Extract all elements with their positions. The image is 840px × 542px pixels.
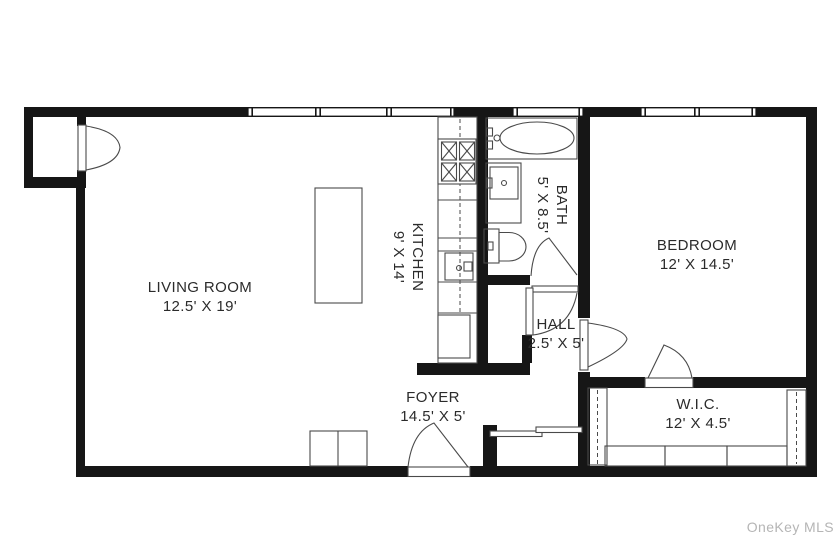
entry-closet-bottom-wall xyxy=(24,177,78,188)
room-name: BATH xyxy=(552,150,571,260)
entry-closet-jamb-bottom xyxy=(77,170,86,188)
room-name: BEDROOM xyxy=(607,236,787,255)
room-label-hall: HALL 2.5' X 5' xyxy=(486,315,626,353)
room-label-bedroom: BEDROOM 12' X 14.5' xyxy=(607,236,787,274)
bottom-wall-right xyxy=(470,466,817,477)
room-dims: 12' X 4.5' xyxy=(608,414,788,433)
top-wall-left xyxy=(24,107,247,117)
toilet xyxy=(484,229,526,263)
foyer-cabinet xyxy=(310,431,367,466)
room-dims: 2.5' X 5' xyxy=(486,334,626,353)
entry-closet-door xyxy=(78,125,120,171)
floor-plan: LIVING ROOM 12.5' X 19' KITCHEN 9' X 14'… xyxy=(0,0,840,542)
wic-shelf-2 xyxy=(665,446,727,466)
wic-top-wall-right xyxy=(693,377,806,388)
entry-door xyxy=(408,423,470,477)
bedroom-west-wall-upper xyxy=(578,107,590,318)
wic-shelf-3 xyxy=(727,446,787,466)
bottom-wall-left xyxy=(76,466,408,477)
room-label-kitchen: KITCHEN 9' X 14' xyxy=(389,197,427,317)
room-name: FOYER xyxy=(353,388,513,407)
room-name: LIVING ROOM xyxy=(110,278,290,297)
refrigerator xyxy=(438,315,470,358)
room-dims: 5' X 8.5' xyxy=(533,150,552,260)
bath-window xyxy=(512,107,584,117)
room-label-wic: W.I.C. 12' X 4.5' xyxy=(608,395,788,433)
living-room-window xyxy=(247,107,455,117)
top-wall-mid-2 xyxy=(584,107,640,117)
wic-top-wall-left xyxy=(588,377,645,388)
kitchen-island xyxy=(315,188,362,303)
foyer-top-wall xyxy=(417,363,530,375)
watermark: OneKey MLS xyxy=(747,519,834,535)
foyer-closet-sliding-doors xyxy=(490,427,582,437)
room-dims: 9' X 14' xyxy=(389,197,408,317)
bath-bottom-wall xyxy=(477,275,530,285)
room-dims: 12.5' X 19' xyxy=(110,297,290,316)
room-label-living-room: LIVING ROOM 12.5' X 19' xyxy=(110,278,290,316)
bedroom-window xyxy=(640,107,757,117)
room-name: KITCHEN xyxy=(408,197,427,317)
left-wall-upper xyxy=(24,107,33,188)
wic-shelf-1 xyxy=(605,446,665,466)
right-wall xyxy=(806,107,817,477)
bath-vanity-sink xyxy=(486,163,521,223)
wic-door xyxy=(645,345,693,388)
room-name: HALL xyxy=(486,315,626,334)
room-dims: 12' X 14.5' xyxy=(607,255,787,274)
room-name: W.I.C. xyxy=(608,395,788,414)
room-dims: 14.5' X 5' xyxy=(353,407,513,426)
kitchen-sink xyxy=(445,253,473,280)
room-label-foyer: FOYER 14.5' X 5' xyxy=(353,388,513,426)
left-wall-main xyxy=(76,188,85,477)
room-label-bath: BATH 5' X 8.5' xyxy=(533,150,571,260)
stove xyxy=(438,139,476,184)
